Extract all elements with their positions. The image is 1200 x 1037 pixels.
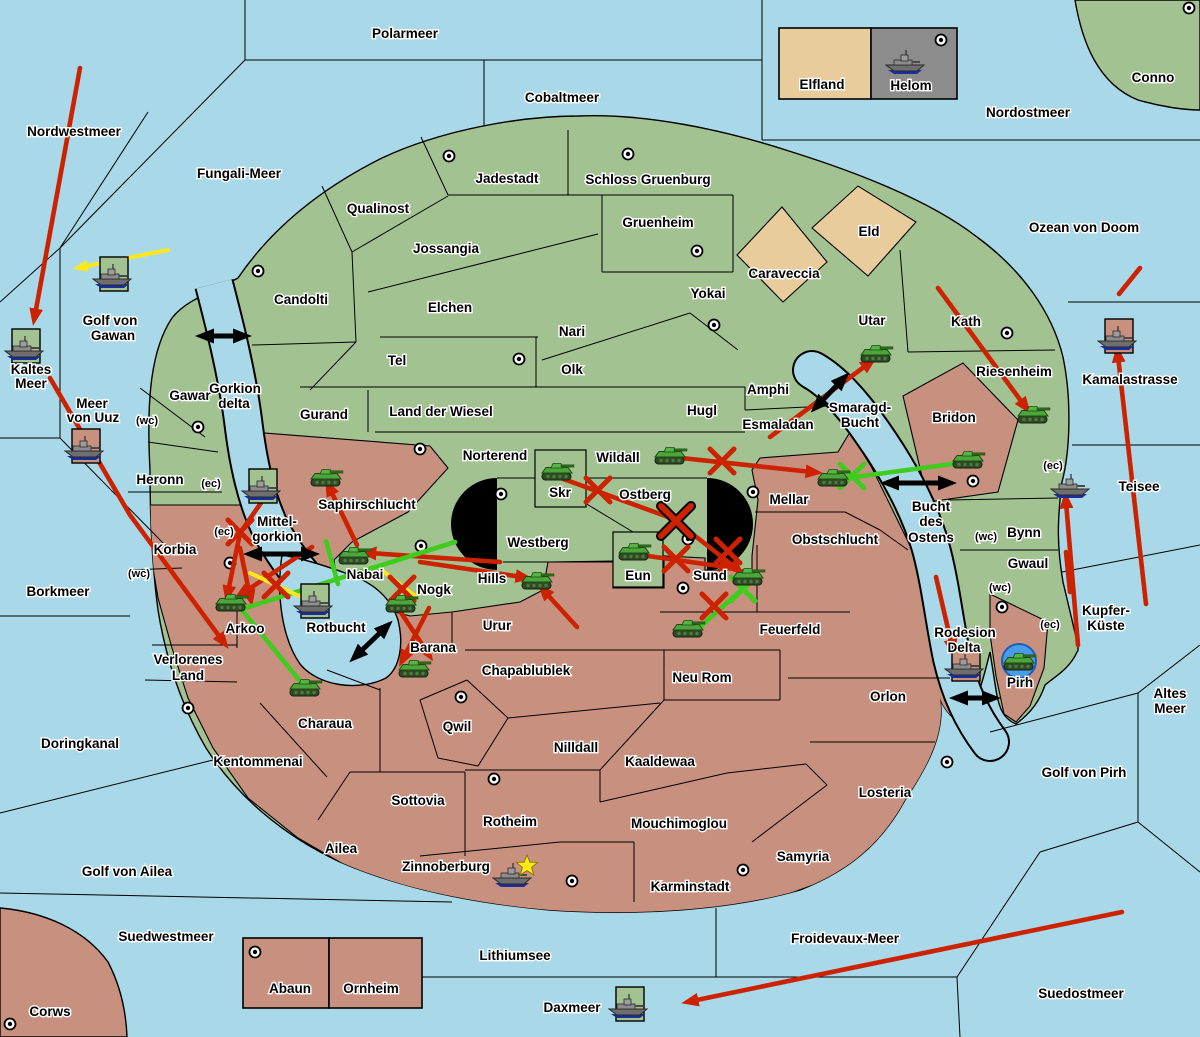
region-label: Ornheim [343,981,399,996]
supply-center-icon [692,246,703,257]
region-label: Küste [1087,618,1125,633]
region-label: Gawan [91,328,135,343]
supply-center-icon [567,876,578,887]
region-label: Westberg [507,535,568,550]
supply-center-icon [514,354,525,365]
supply-center-icon [444,151,455,162]
region-label: Suedwestmeer [118,929,214,944]
region-label: Ailea [325,841,358,856]
region-label: Froidevaux-Meer [791,931,900,946]
supply-center-icon [623,149,634,160]
region-label: Suedostmeer [1038,986,1124,1001]
region-label: Heronn [136,472,183,487]
region-label: Cobaltmeer [525,90,600,105]
region-label: Meer [76,396,108,411]
region-label: Olk [561,362,583,377]
region-label: Neu Rom [672,670,731,685]
supply-center-icon [1002,328,1013,339]
region-label: Saphirschlucht [318,497,416,512]
supply-center-icon [250,947,261,958]
region-label: Esmaladan [742,417,813,432]
region-label: Wildall [596,450,639,465]
region-label: Rotheim [483,814,537,829]
region-label: Delta [947,640,981,655]
region-label: Gawar [169,388,211,403]
island-region [329,938,422,1008]
supply-center-icon [942,757,953,768]
region-label: Sottovia [391,793,445,808]
region-label: Hills [478,571,507,586]
region-label: Abaun [269,981,311,996]
supply-center-icon [193,422,204,433]
region-label: Bucht [912,499,951,514]
region-label: Verlorenes [153,652,222,667]
region-label: Conno [1132,70,1175,85]
supply-center-icon [415,444,426,455]
region-label: Smaragd- [829,400,891,415]
region-label: Hugl [687,403,717,418]
supply-center-icon [456,692,467,703]
region-label: Bridon [932,410,976,425]
region-label: Borkmeer [26,584,90,599]
region-label: Nogk [417,582,451,597]
region-label: Meer [1154,701,1186,716]
supply-center-icon [968,476,979,487]
region-label: Kentommenai [213,754,302,769]
region-label: Nordostmeer [986,105,1071,120]
supply-center-icon [997,602,1008,613]
supply-center-icon [183,703,194,714]
region-label: Jadestadt [475,171,539,186]
region-label: gorkion [252,529,302,544]
region-label: des [919,514,942,529]
region-label: Tel [388,353,407,368]
region-label: Jossangia [413,241,480,256]
region-label: Lithiumsee [479,948,551,963]
region-label: Gurand [300,407,348,422]
region-label: Yokai [690,286,725,301]
region-label: Eun [625,568,651,583]
region-label: Ostberg [619,487,671,502]
game-map: PolarmeerCobaltmeerNordwestmeerFungali-M… [0,0,1200,1037]
region-label: Obstschlucht [792,532,879,547]
region-label: Utar [858,313,886,328]
region-label: (ec) [214,526,234,538]
region-label: (ec) [201,478,221,490]
region-label: Elchen [428,300,472,315]
region-label: (ec) [1043,460,1063,472]
region-label: (wc) [975,531,997,543]
region-label: Daxmeer [543,1000,601,1015]
region-label: Land der Wiesel [389,404,492,419]
region-label: Gwaul [1008,556,1049,571]
region-label: Helom [890,78,931,93]
region-label: Riesenheim [976,364,1052,379]
region-label: Ostens [908,530,954,545]
supply-center-icon [678,583,689,594]
region-label: Kaltes [11,362,52,377]
region-label: Golf von Pirh [1042,765,1127,780]
region-label: (wc) [989,582,1011,594]
region-label: Fungali-Meer [197,166,282,181]
region-label: Gruenheim [622,215,693,230]
region-label: Rodesion [934,625,996,640]
region-label: Urur [483,618,512,633]
region-label: Corws [29,1004,70,1019]
region-label: Qwil [443,719,472,734]
region-label: Chapablublek [482,663,571,678]
region-label: Arkoo [225,621,264,636]
region-label: Nari [559,324,585,339]
region-label: Pirh [1007,675,1033,690]
region-label: Samyria [777,849,830,864]
region-label: von Uuz [67,410,120,425]
region-label: Orlon [870,689,906,704]
region-label: Zinnoberburg [402,859,490,874]
region-label: Candolti [274,292,328,307]
supply-center-icon [936,35,947,46]
region-label: Bucht [841,415,880,430]
region-label: Rotbucht [306,620,366,635]
region-label: Kath [951,314,981,329]
region-label: Sund [693,568,727,583]
region-label: Meer [15,376,47,391]
supply-center-icon [5,1019,16,1030]
region-label: Ozean von Doom [1029,220,1139,235]
region-label: Land [172,668,204,683]
army-unit-pirh[interactable] [1002,644,1036,678]
region-label: Schloss Gruenburg [585,172,710,187]
region-label: Altes [1153,686,1186,701]
supply-center-icon [496,489,507,500]
region-label: Nilldall [554,740,598,755]
supply-center-icon [709,320,720,331]
region-label: Mittel- [257,514,297,529]
region-label: delta [218,396,250,411]
region-label: Karminstadt [651,879,730,894]
region-label: Qualinost [347,201,410,216]
region-label: Golf von Ailea [82,864,173,879]
supply-center-icon [748,487,759,498]
map-canvas[interactable]: PolarmeerCobaltmeerNordwestmeerFungali-M… [0,0,1200,1037]
region-label: Norterend [463,448,528,463]
supply-center-icon [738,865,749,876]
region-label: Teisee [1118,479,1160,494]
supply-center-icon [1184,3,1195,14]
region-label: Elfland [799,77,844,92]
region-label: Kupfer- [1082,603,1130,618]
region-label: Bynn [1007,525,1041,540]
region-label: Amphi [747,382,789,397]
region-label: Feuerfeld [760,622,821,637]
region-label: Nordwestmeer [27,124,122,139]
region-label: (wc) [128,568,150,580]
region-label: Mellar [769,492,809,507]
region-label: Doringkanal [41,736,119,751]
supply-center-icon [489,774,500,785]
region-label: Kamalastrasse [1082,372,1178,387]
region-label: Barana [410,640,456,655]
region-label: Nabai [347,567,384,582]
region-label: Korbia [154,542,197,557]
region-label: Kaaldewaa [625,754,695,769]
region-label: (ec) [1040,619,1060,631]
region-label: Losteria [859,785,912,800]
region-label: Skr [549,485,572,500]
region-label: Mouchimoglou [631,816,727,831]
region-label: Eld [858,224,879,239]
supply-center-icon [253,266,264,277]
region-label: Gorkion [209,381,261,396]
region-label: Polarmeer [372,26,439,41]
region-label: Golf von [83,313,138,328]
region-label: Charaua [298,716,353,731]
region-label: Caraveccia [748,266,820,281]
region-label: (wc) [136,415,158,427]
